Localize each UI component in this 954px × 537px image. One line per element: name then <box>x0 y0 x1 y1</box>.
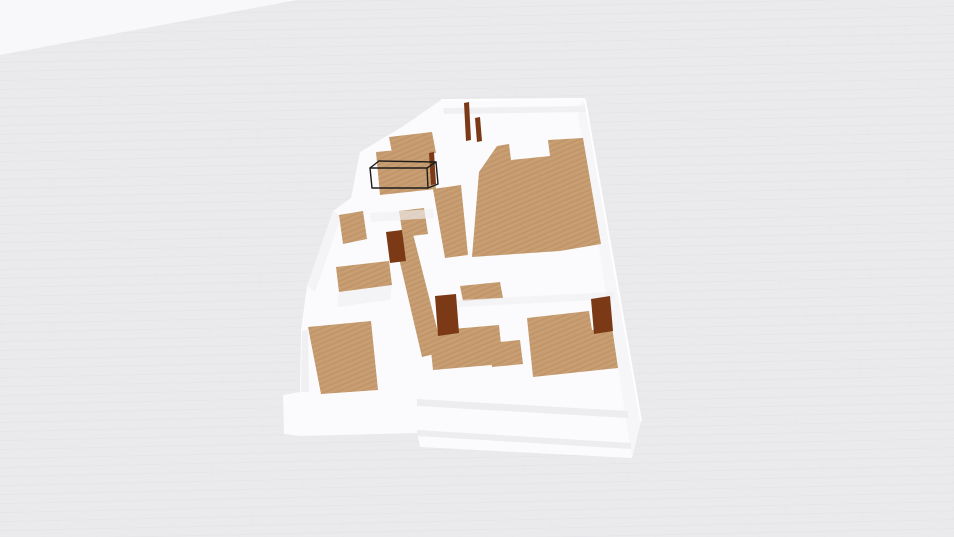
open-door-south-left[interactable] <box>435 294 459 336</box>
wood-floor-room-south-center[interactable] <box>489 340 523 367</box>
open-door-south-right[interactable] <box>591 296 613 334</box>
wood-floor-room-west-upper[interactable] <box>339 211 367 244</box>
back-wall-top-edge <box>441 99 585 100</box>
planner-3d-viewport[interactable] <box>0 0 954 537</box>
left-wall-face-lower <box>301 330 309 392</box>
scene-canvas[interactable] <box>0 0 954 537</box>
